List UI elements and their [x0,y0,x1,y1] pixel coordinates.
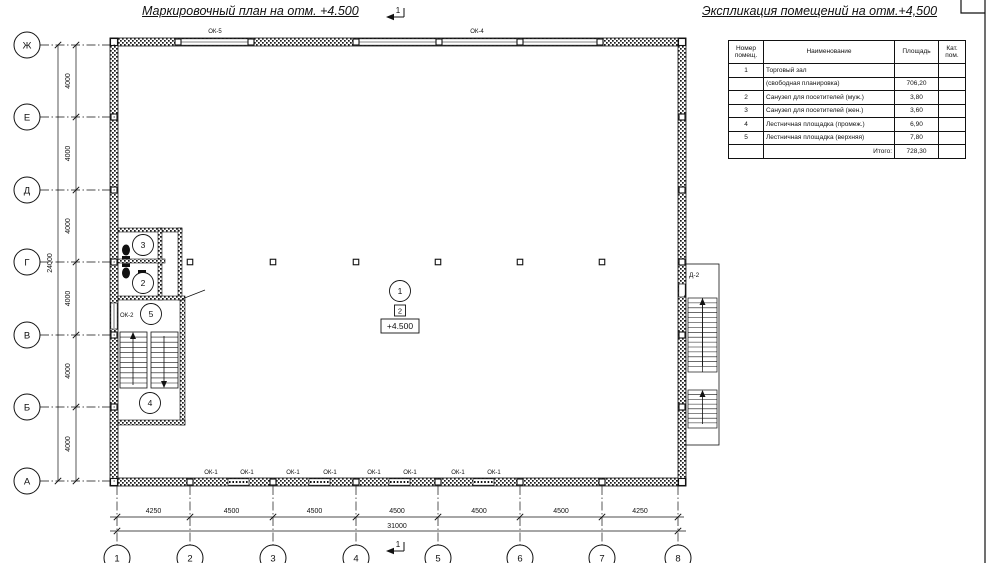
dim-total: 24000 [47,253,54,273]
window-opening [309,479,330,485]
window-mark-left: ОК-2 [120,313,134,319]
room-number: 4 [148,398,153,408]
axis-number: 1 [114,554,119,563]
wc-tank [122,256,130,260]
section-number: 1 [396,540,401,549]
column [679,114,685,120]
dim-value: 4000 [65,436,72,452]
door-leaf [182,290,205,299]
arrow-head [130,332,136,339]
axis-letter: Ж [23,40,32,51]
column [597,39,603,45]
floor-type-number: 2 [398,307,402,316]
dim-value: 4000 [65,291,72,307]
door-opening [679,284,685,297]
column [175,39,181,45]
column [517,479,523,485]
axis-number: 5 [435,554,440,563]
wc-fixture [122,245,130,256]
dim-value: 4000 [65,218,72,234]
window-mark-bottom: ОК-1 [323,470,337,476]
column [517,259,523,265]
room-number: 2 [141,278,146,288]
dim-value: 4500 [307,508,323,515]
interior-layer [118,228,719,445]
room-number: 3 [141,240,146,250]
column [353,259,359,265]
axis-number: 3 [270,554,275,563]
dim-value: 4250 [146,508,162,515]
window-mark-bottom: ОК-1 [204,470,218,476]
section-number: 1 [396,6,401,15]
arrow-head [161,381,167,388]
column [679,479,686,486]
window-opening [473,479,494,485]
partition-wall [118,420,185,425]
dim-value: 4500 [471,508,487,515]
column [435,259,441,265]
stair-flight [120,332,147,388]
partition-wall [178,228,182,300]
dim-value: 4500 [553,508,569,515]
window-opening [389,479,410,485]
door-mark: Д-2 [689,272,700,279]
axis-letter: Г [24,257,29,268]
axis-number: 2 [187,554,192,563]
drawing-sheet: Маркировочный план на отм. +4.500 Экспли… [0,0,1007,563]
axis-letter: Д [24,185,31,196]
window-mark-top: ОК-5 [208,29,222,35]
column [111,479,118,486]
column [187,479,193,485]
column [270,259,276,265]
column [270,479,276,485]
partition-wall [118,259,165,263]
dim-value: 4500 [224,508,240,515]
dim-value: 4000 [65,146,72,162]
axis-number: 4 [353,554,358,563]
column [679,332,685,338]
dim-value: 4000 [65,363,72,379]
wc-fixture [122,268,130,279]
column [111,39,118,46]
window-opening [228,479,249,485]
axis-number: 8 [675,554,680,563]
room-number: 1 [398,286,403,296]
axis-letter: В [24,330,30,341]
axis-number: 6 [517,554,522,563]
partition-wall [118,296,185,300]
window-mark-bottom: ОК-1 [240,470,254,476]
level-mark-value: +4.500 [387,321,414,331]
column [353,479,359,485]
dim-value: 4000 [65,73,72,89]
partition-wall [180,300,185,425]
partition-wall [158,228,162,300]
room-number: 5 [149,309,154,319]
column [679,39,686,46]
window-mark-top: ОК-4 [470,29,484,35]
window-mark-bottom: ОК-1 [367,470,381,476]
column [187,259,193,265]
column [517,39,523,45]
stair-flight [151,332,178,388]
axis-number: 7 [599,554,604,563]
section-arrow [386,548,394,554]
walls-layer [110,38,703,486]
column [436,39,442,45]
window-mark-bottom: ОК-1 [451,470,465,476]
axis-letter: Е [24,112,30,123]
column [435,479,441,485]
floor-plan-drawing: ЖЕДГВБА12345678 400040004000400040004000… [0,0,1007,563]
section-arrow [386,14,394,20]
column [679,187,685,193]
dim-value: 4250 [632,508,648,515]
window-mark-bottom: ОК-1 [286,470,300,476]
partition-wall [118,228,182,232]
wc-tank [122,264,130,268]
column [599,479,605,485]
window-mark-bottom: ОК-1 [403,470,417,476]
dim-value: 4500 [389,508,405,515]
column [353,39,359,45]
axis-letter: Б [24,402,30,413]
window-mark-bottom: ОК-1 [487,470,501,476]
axis-letter: А [24,476,31,487]
sheet-border-notch [961,0,985,13]
column [679,259,685,265]
column [599,259,605,265]
column [679,404,685,410]
dim-total: 31000 [387,523,407,530]
column [248,39,254,45]
